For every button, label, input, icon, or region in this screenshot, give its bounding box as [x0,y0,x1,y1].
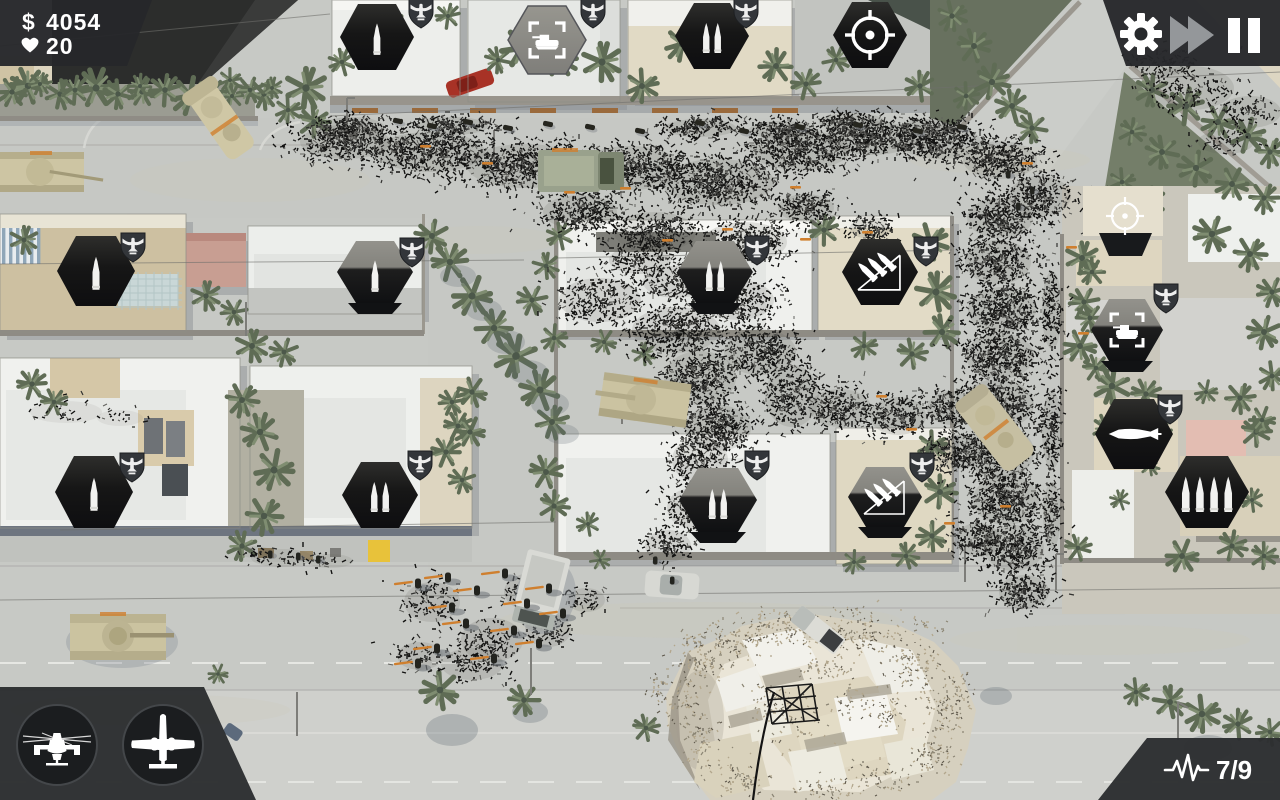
svg-text:4054: 4054 [46,9,101,35]
svg-text:$: $ [22,9,35,35]
svg-text:20: 20 [46,33,74,59]
svg-text:7/9: 7/9 [1216,755,1252,785]
